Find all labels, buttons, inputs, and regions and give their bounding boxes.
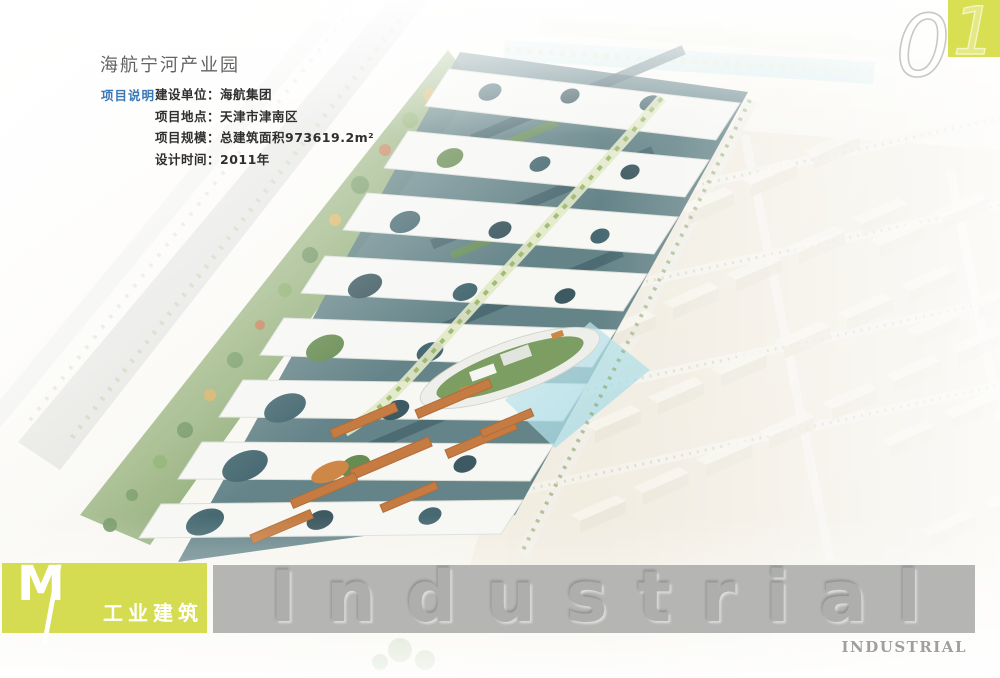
detail-label: 建设单位：: [155, 87, 220, 102]
category-slash-divider: /: [42, 554, 61, 650]
watermark-text: Industrial: [270, 565, 951, 631]
detail-row-owner: 建设单位：海航集团: [155, 84, 374, 106]
category-label: 工业建筑: [103, 597, 203, 626]
detail-row-scale: 项目规模：总建筑面积973619.2m²: [155, 127, 374, 149]
portfolio-page: 海航宁河产业园 项目说明 建设单位：海航集团 项目地点：天津市津南区 项目规模：…: [0, 0, 1000, 678]
section-label: 项目说明: [101, 85, 155, 104]
page-number: 0 1: [885, 0, 1000, 100]
detail-value: 总建筑面积973619.2m²: [220, 130, 374, 145]
page-number-digit-zero: 0: [896, 0, 951, 97]
detail-row-location: 项目地点：天津市津南区: [155, 106, 374, 128]
detail-value: 天津市津南区: [220, 109, 298, 124]
detail-value: 2011年: [220, 152, 270, 167]
page-number-digit-one: 1: [953, 0, 995, 70]
detail-row-year: 设计时间：2011年: [155, 149, 374, 171]
industrial-corner-label: INDUSTRIAL: [842, 638, 967, 656]
category-block: M / 工业建筑: [2, 563, 207, 633]
detail-label: 设计时间：: [155, 152, 220, 167]
project-details: 建设单位：海航集团 项目地点：天津市津南区 项目规模：总建筑面积973619.2…: [155, 84, 374, 170]
detail-label: 项目地点：: [155, 109, 220, 124]
detail-value: 海航集团: [220, 87, 272, 102]
page-title: 海航宁河产业园: [100, 56, 240, 76]
watermark-band: Industrial: [213, 565, 975, 633]
detail-label: 项目规模：: [155, 130, 220, 145]
